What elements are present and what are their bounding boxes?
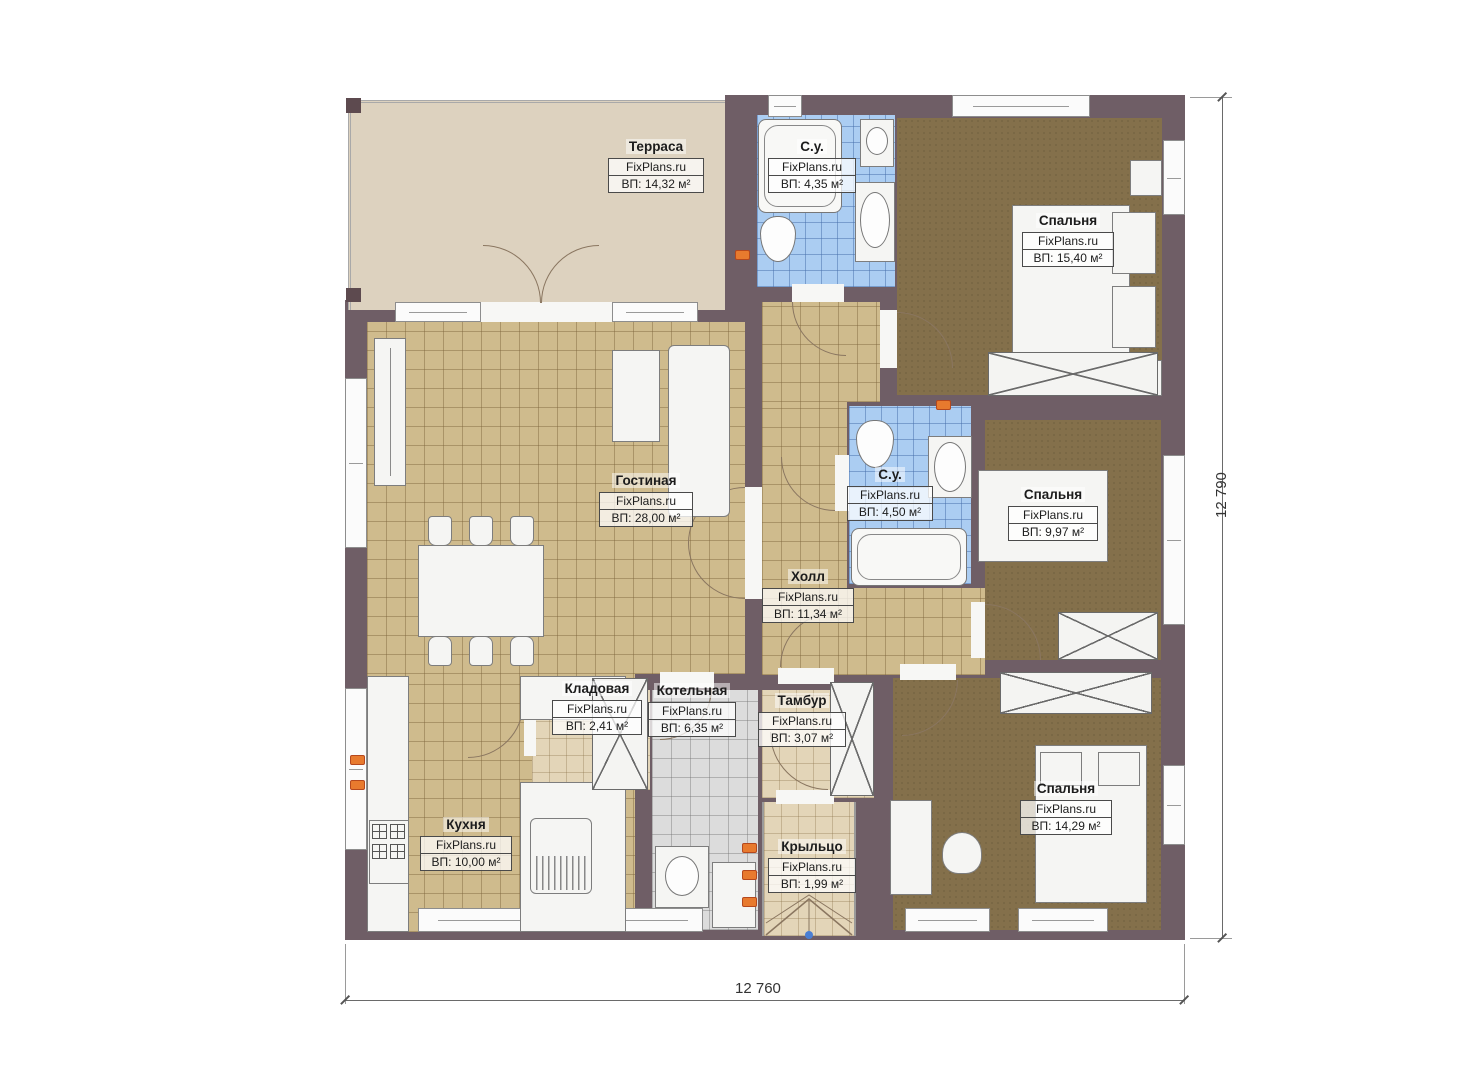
label-bedroom-top-right: Спальня FixPlans.ru ВП: 15,40 м² xyxy=(1012,212,1124,267)
stove-burner xyxy=(372,844,387,859)
window xyxy=(345,378,367,548)
label-bathroom-mid: С.у. FixPlans.ru ВП: 4,50 м² xyxy=(842,466,938,521)
watermark: FixPlans.ru xyxy=(421,837,511,854)
window xyxy=(1163,140,1185,215)
door-opening xyxy=(880,310,897,368)
room-area: ВП: 6,35 м² xyxy=(649,720,735,736)
room-area: ВП: 28,00 м² xyxy=(600,510,692,526)
wardrobe xyxy=(1058,612,1158,660)
socket-icon xyxy=(350,780,365,790)
dim-height-label: 12 790 xyxy=(1213,472,1230,518)
room-area: ВП: 4,50 м² xyxy=(848,504,932,520)
tv-cabinet xyxy=(374,338,406,486)
sink-drainer xyxy=(536,856,586,890)
room-area: ВП: 3,07 м² xyxy=(759,730,845,746)
room-name: С.у. xyxy=(875,467,905,482)
entry-steps xyxy=(762,893,856,939)
stove-burner xyxy=(390,824,405,839)
label-hall: Холл FixPlans.ru ВП: 11,34 м² xyxy=(758,568,858,623)
window xyxy=(395,302,481,322)
room-area: ВП: 2,41 м² xyxy=(553,718,641,734)
dim-width-label: 12 760 xyxy=(735,980,781,997)
sink xyxy=(934,442,966,492)
kitchen-counter xyxy=(367,676,409,932)
room-name: Котельная xyxy=(654,683,731,698)
dim-extension-line xyxy=(1190,938,1232,939)
chair xyxy=(510,516,534,546)
stove-burner xyxy=(390,844,405,859)
room-name: Кухня xyxy=(443,817,488,832)
washing-machine-drum xyxy=(866,127,888,155)
label-bedroom-bottom-right: Спальня FixPlans.ru ВП: 14,29 м² xyxy=(1010,780,1122,835)
dim-extension-line xyxy=(1190,97,1232,98)
watermark: FixPlans.ru xyxy=(553,701,641,718)
door-opening xyxy=(900,664,956,680)
sink xyxy=(860,192,890,248)
desk-chair xyxy=(942,832,982,874)
chair xyxy=(428,516,452,546)
label-boiler-room: Котельная FixPlans.ru ВП: 6,35 м² xyxy=(640,682,744,737)
label-terrace: Терраса FixPlans.ru ВП: 14,32 м² xyxy=(596,138,716,193)
door-opening xyxy=(971,602,985,658)
wardrobe xyxy=(1000,672,1152,714)
dim-extension-line xyxy=(1184,944,1185,1004)
stove-burner xyxy=(372,824,387,839)
socket-icon xyxy=(350,755,365,765)
room-name: Спальня xyxy=(1036,213,1100,228)
room-name: Тамбур xyxy=(775,693,830,708)
room-name: Кладовая xyxy=(562,681,633,696)
room-area: ВП: 15,40 м² xyxy=(1023,250,1113,266)
socket-icon xyxy=(742,870,757,880)
room-area: ВП: 14,29 м² xyxy=(1021,818,1111,834)
room-hall xyxy=(847,588,985,675)
watermark: FixPlans.ru xyxy=(600,493,692,510)
room-area: ВП: 1,99 м² xyxy=(769,876,855,892)
window xyxy=(1018,908,1108,932)
door-opening xyxy=(778,668,834,684)
watermark: FixPlans.ru xyxy=(769,159,855,176)
room-name: Холл xyxy=(788,569,828,584)
dining-table xyxy=(418,545,544,637)
dim-line-right xyxy=(1222,97,1223,939)
room-name: Терраса xyxy=(626,139,686,154)
room-name: Спальня xyxy=(1021,487,1085,502)
chair xyxy=(510,636,534,666)
wardrobe xyxy=(988,352,1158,396)
room-name: Гостиная xyxy=(612,473,679,488)
socket-icon xyxy=(735,250,750,260)
label-living-room: Гостиная FixPlans.ru ВП: 28,00 м² xyxy=(588,472,704,527)
watermark: FixPlans.ru xyxy=(649,703,735,720)
floor-plan-canvas: Терраса FixPlans.ru ВП: 14,32 м² С.у. Fi… xyxy=(0,0,1474,1080)
nightstand xyxy=(1130,160,1162,196)
socket-icon xyxy=(936,400,951,410)
room-name: С.у. xyxy=(797,139,827,154)
watermark: FixPlans.ru xyxy=(1023,233,1113,250)
room-name: Спальня xyxy=(1034,781,1098,796)
watermark: FixPlans.ru xyxy=(848,487,932,504)
chair xyxy=(469,516,493,546)
label-vestibule: Тамбур FixPlans.ru ВП: 3,07 м² xyxy=(754,692,850,747)
pillow xyxy=(1112,286,1156,348)
socket-icon xyxy=(742,843,757,853)
coffee-table xyxy=(612,350,660,442)
room-area: ВП: 4,35 м² xyxy=(769,176,855,192)
terrace-door-opening xyxy=(481,302,612,322)
window xyxy=(1163,455,1185,625)
watermark: FixPlans.ru xyxy=(1009,507,1097,524)
terrace-post xyxy=(346,288,361,302)
label-bedroom-mid-right: Спальня FixPlans.ru ВП: 9,97 м² xyxy=(998,486,1108,541)
window xyxy=(1163,765,1185,845)
terrace-post xyxy=(346,98,361,113)
window xyxy=(612,302,698,322)
entry-point-marker xyxy=(805,931,813,939)
chair xyxy=(428,636,452,666)
window xyxy=(952,95,1090,117)
label-storage: Кладовая FixPlans.ru ВП: 2,41 м² xyxy=(542,680,652,735)
watermark: FixPlans.ru xyxy=(769,859,855,876)
room-area: ВП: 11,34 м² xyxy=(763,606,853,622)
door-opening xyxy=(776,790,834,804)
room-terrace xyxy=(348,100,725,310)
desk xyxy=(890,800,932,895)
dim-line-bottom xyxy=(345,1000,1185,1001)
watermark: FixPlans.ru xyxy=(609,159,703,176)
room-area: ВП: 14,32 м² xyxy=(609,176,703,192)
label-bathroom-top: С.у. FixPlans.ru ВП: 4,35 м² xyxy=(762,138,862,193)
window xyxy=(905,908,990,932)
room-area: ВП: 10,00 м² xyxy=(421,854,511,870)
chair xyxy=(469,636,493,666)
window xyxy=(768,95,802,117)
dim-extension-line xyxy=(345,944,346,1004)
bathtub xyxy=(851,528,967,586)
window xyxy=(345,688,367,850)
room-name: Крыльцо xyxy=(778,839,845,854)
watermark: FixPlans.ru xyxy=(759,713,845,730)
watermark: FixPlans.ru xyxy=(763,589,853,606)
watermark: FixPlans.ru xyxy=(1021,801,1111,818)
room-area: ВП: 9,97 м² xyxy=(1009,524,1097,540)
washing-machine-drum xyxy=(665,856,699,896)
door-opening xyxy=(792,284,844,302)
socket-icon xyxy=(742,897,757,907)
label-porch: Крыльцо FixPlans.ru ВП: 1,99 м² xyxy=(760,838,864,893)
label-kitchen: Кухня FixPlans.ru ВП: 10,00 м² xyxy=(416,816,516,871)
